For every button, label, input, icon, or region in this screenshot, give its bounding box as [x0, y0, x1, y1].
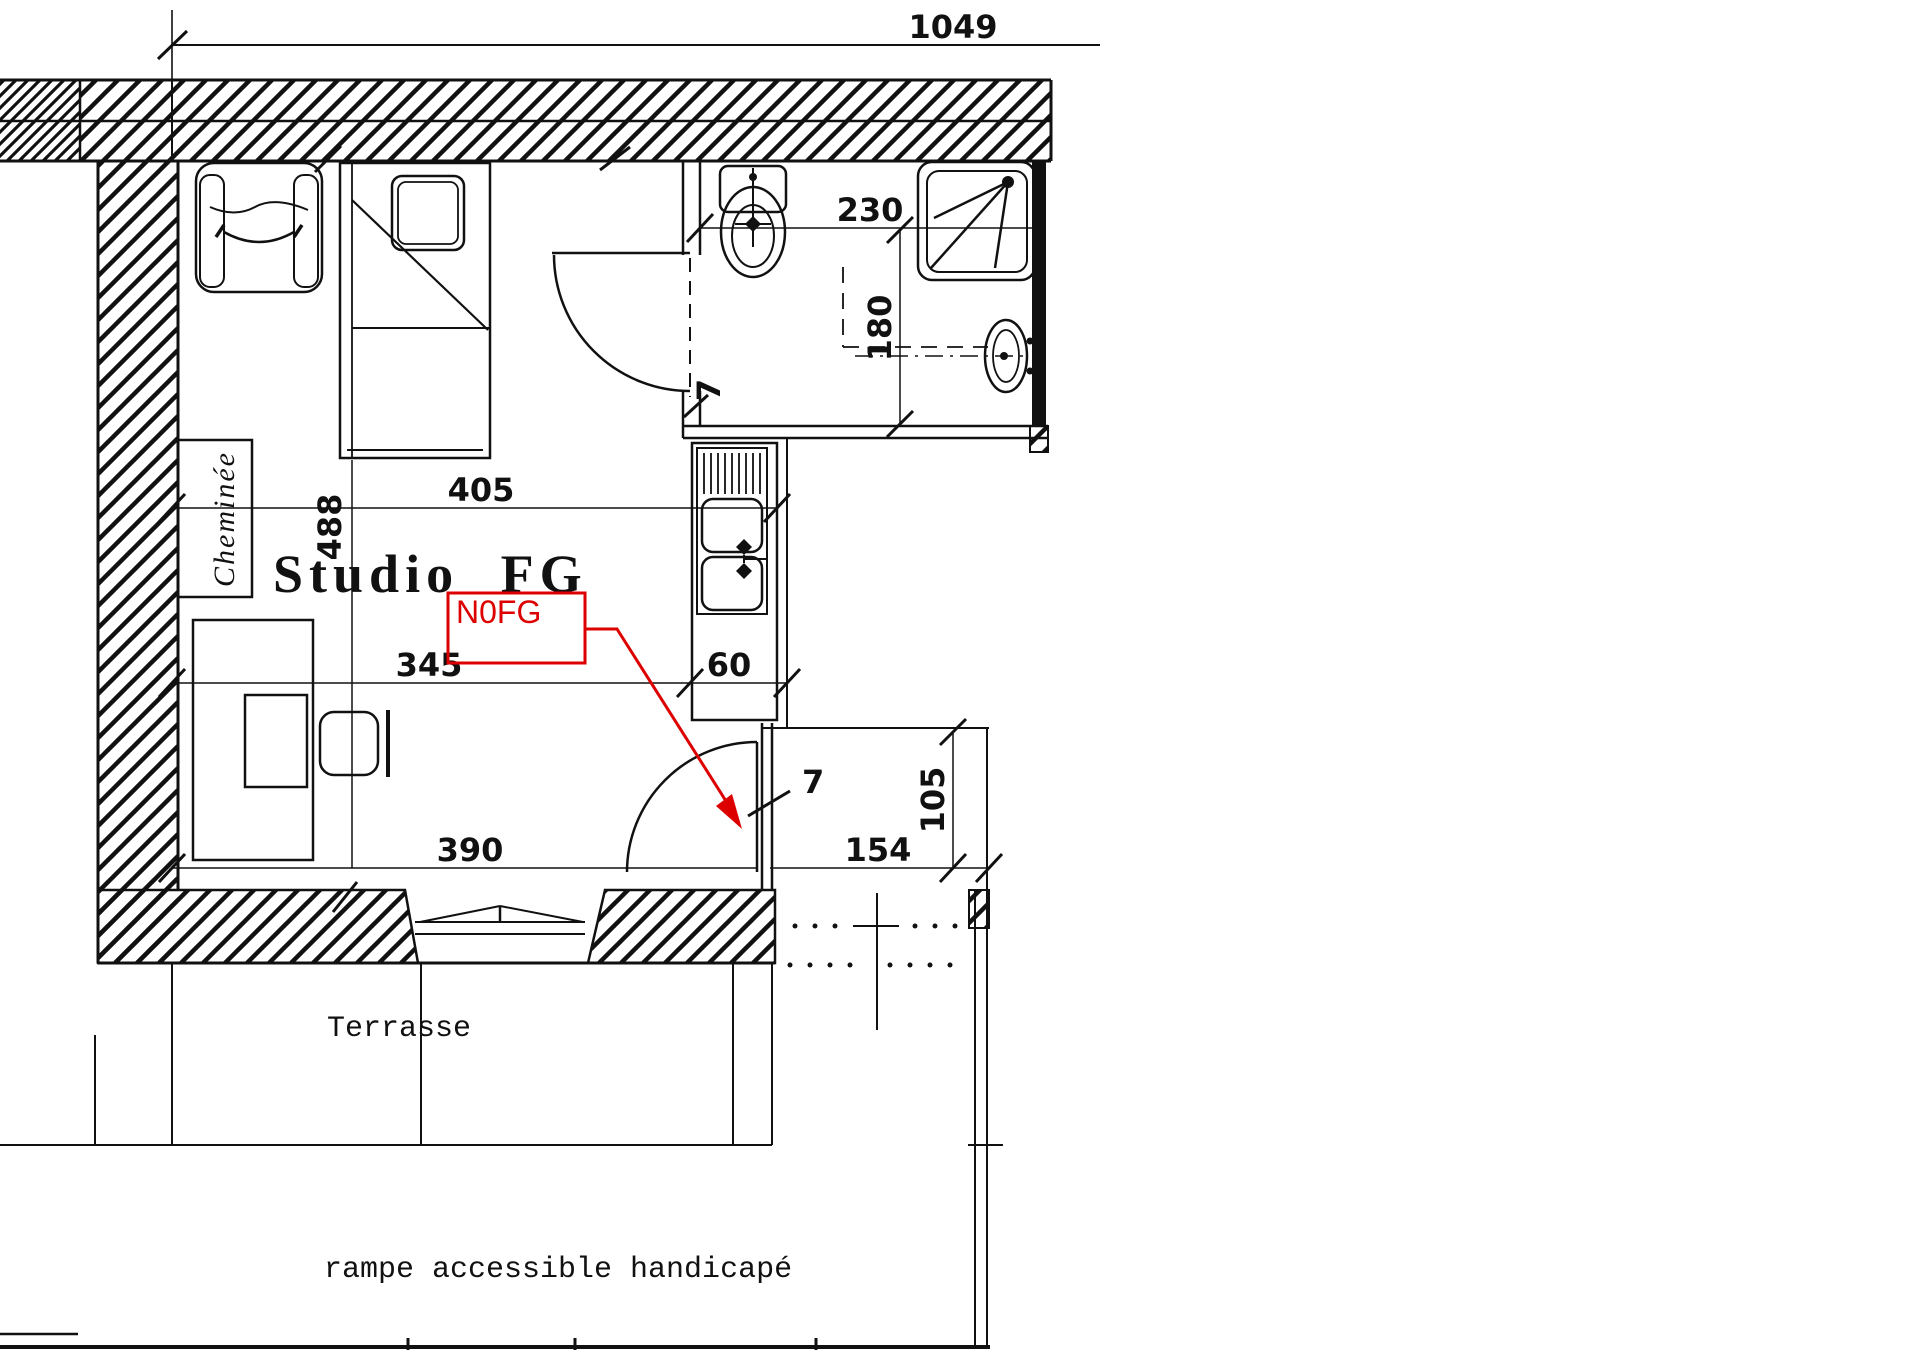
- bathroom: [552, 161, 1048, 452]
- dim-shower-depth-text: 180: [861, 295, 899, 362]
- door-swing-arc: [554, 255, 690, 391]
- dim-lower-width-text: 390: [437, 831, 504, 869]
- pillow: [392, 176, 464, 250]
- sink-basin: [702, 499, 762, 552]
- chair: [320, 712, 378, 775]
- annotation-arrowhead: [716, 794, 742, 829]
- top-wall: [0, 80, 1051, 172]
- sink-basin: [702, 557, 762, 610]
- dim-sitting-zone-text: 345: [396, 646, 463, 684]
- annotation-text: N0FG: [456, 594, 541, 630]
- ramp-label: rampe accessible handicapé: [324, 1253, 792, 1287]
- dim-bath-wall-text: 7: [690, 379, 728, 401]
- entry-door: [627, 742, 757, 872]
- dim-landing-depth-text: 105: [914, 767, 952, 834]
- dim-wc-width-text: 230: [837, 191, 904, 229]
- dim-overall-width-text: 1049: [908, 8, 997, 46]
- chimney: Cheminée: [178, 440, 252, 597]
- kitchen: [692, 438, 787, 728]
- dim-landing-width-text: 154: [845, 831, 912, 869]
- step-dotted-lines: [788, 893, 958, 1030]
- drainboard: [704, 453, 760, 494]
- armchair: [196, 163, 322, 292]
- toilet: [720, 166, 786, 277]
- desk: [193, 620, 388, 860]
- chimney-label: Cheminée: [208, 451, 241, 587]
- dim-entry-wall-text: 7: [802, 763, 824, 801]
- left-wall: [98, 161, 178, 963]
- bathroom-door: [552, 253, 690, 391]
- terrace-window-sill: [415, 906, 585, 934]
- dimension-overall-width: 1049: [158, 8, 1100, 80]
- bed: [340, 163, 490, 458]
- bathroom-dimensions: 230 180 7: [684, 191, 1035, 437]
- dim-room-width-text: 405: [448, 471, 515, 509]
- desk-monitor: [245, 695, 307, 787]
- terrace-label: Terrasse: [327, 1012, 471, 1046]
- dim-kitchen-width-text: 60: [707, 646, 752, 684]
- annotation-nofg: N0FG: [448, 593, 742, 829]
- landing-dimensions: 7 105 154: [748, 719, 1002, 1030]
- terrace: [0, 963, 1003, 1145]
- door-swing-arc: [627, 742, 757, 872]
- shower: [918, 162, 1035, 280]
- floor-plan-drawing: 1049: [0, 0, 1920, 1350]
- room-dimensions: 405 488 345 60 390: [159, 460, 800, 882]
- bottom-wall: [98, 882, 989, 963]
